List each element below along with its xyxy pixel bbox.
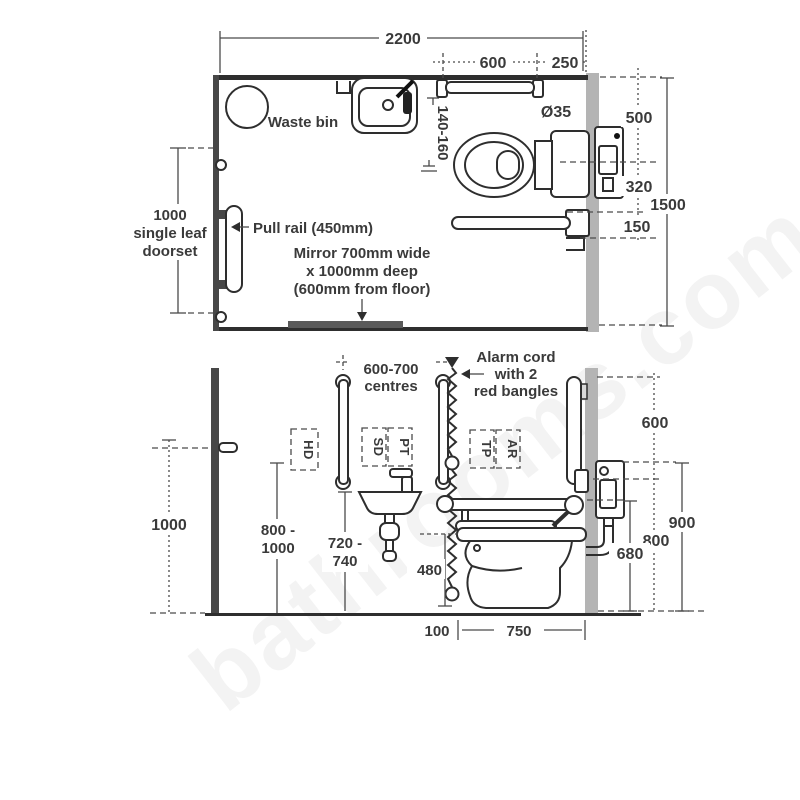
dim-elev-1000: 1000 — [146, 440, 211, 613]
wall-bracket-plan — [566, 238, 584, 250]
dim-elev-1000-label: 1000 — [151, 517, 187, 534]
dim-elev-600-label: 600 — [642, 415, 669, 432]
floor-line — [205, 613, 641, 616]
dim-720-740-label-1: 720 - — [328, 535, 362, 552]
door-label-3: doorset — [142, 243, 197, 260]
centres-label-2: centres — [364, 378, 417, 395]
dim-600-label: 600 — [480, 55, 507, 72]
dim-800-1000-label-1: 800 - — [261, 522, 295, 539]
cistern-plan — [551, 131, 589, 197]
dim-140-160-label: 140-160 — [434, 105, 451, 160]
plan-view: Waste bin 140-160 Ø35 — [128, 28, 692, 332]
accessible-bathroom-dimension-diagram: bathrooms.com Waste bin — [0, 0, 800, 800]
dim-100-label: 100 — [424, 623, 449, 640]
basin-plan — [352, 78, 417, 133]
elev-left-wall — [211, 368, 219, 615]
alarm-cord-mount — [445, 357, 459, 368]
dim-1500-label: 1500 — [650, 197, 686, 214]
alarm-arrow — [461, 369, 470, 379]
dim-800-1000-label-2: 1000 — [261, 540, 294, 557]
mirror-note: Mirror 700mm wide x 1000mm deep (600mm f… — [294, 245, 431, 321]
drop-rail-hinge — [565, 496, 583, 514]
mirror-label-2: x 1000mm deep — [306, 263, 418, 280]
door-hinge-top — [216, 160, 226, 170]
dim-150-label: 150 — [624, 219, 651, 236]
dim-2200-label: 2200 — [385, 31, 421, 48]
dim-2200: 2200 — [220, 28, 583, 73]
diagram-canvas: bathrooms.com Waste bin — [0, 0, 800, 800]
pull-rail-callout: Pull rail (450mm) — [231, 220, 373, 237]
dim-900-label: 900 — [669, 515, 696, 532]
dim-720-740-label-2: 740 — [332, 553, 357, 570]
alarm-bangle-1 — [446, 457, 459, 470]
paper-towel-label: PT — [397, 438, 412, 456]
alarm-reset-label: AR — [505, 439, 520, 459]
door-label-2: single leaf — [133, 225, 207, 242]
vertical-grab-rail-1 — [336, 355, 350, 489]
tap-elevation — [390, 469, 412, 477]
mirror-label-1: Mirror 700mm wide — [294, 245, 431, 262]
coat-hook — [219, 443, 237, 452]
dim-680-label: 680 — [617, 546, 644, 563]
dim-250-label: 250 — [552, 55, 579, 72]
soap-dispenser-label: SD — [371, 437, 386, 456]
plan-right-wall — [586, 73, 599, 332]
soap-dispenser-box: SD — [362, 428, 386, 466]
waste-bin — [226, 86, 268, 128]
door-hinge-bottom — [216, 312, 226, 322]
hand-dryer-label: HD — [301, 440, 316, 460]
dim-750-label: 750 — [506, 623, 531, 640]
door-label-1: 1000 — [153, 207, 186, 224]
pull-rail — [219, 206, 242, 292]
alarm-label-2: with 2 — [494, 366, 538, 383]
toilet-paper-label: TP — [479, 440, 494, 458]
centres-label-1: 600-700 — [363, 361, 418, 378]
duct-box-plan — [595, 127, 623, 198]
dim-100-750: 100 750 — [424, 620, 585, 640]
paper-towel-box: PT — [388, 428, 412, 466]
toilet-pan — [465, 541, 572, 608]
vertical-grab-rail-2 — [436, 362, 450, 489]
plan-left-wall-door — [213, 75, 219, 331]
hand-dryer-box: HD — [291, 429, 318, 470]
toilet-seat — [457, 528, 586, 541]
dim-480-label: 480 — [417, 562, 442, 579]
dim-140-160: 140-160 — [421, 98, 451, 171]
mirror-label-3: (600mm from floor) — [294, 281, 431, 298]
waste-bin-label: Waste bin — [268, 114, 338, 131]
alarm-label-3: red bangles — [474, 383, 558, 400]
alarm-bangle-2 — [446, 588, 459, 601]
toilet-plan — [454, 131, 589, 197]
dim-door: 1000 single leaf doorset — [128, 148, 213, 313]
mirror — [288, 321, 403, 328]
alarm-label-1: Alarm cord — [476, 349, 555, 366]
dim-500-label: 500 — [626, 110, 653, 127]
mirror-arrow — [357, 312, 367, 321]
rail-diameter-label: Ø35 — [541, 104, 571, 121]
grab-rail-top-plan — [437, 80, 543, 97]
pull-rail-label: Pull rail (450mm) — [253, 220, 373, 237]
dispenser-bracket — [337, 81, 350, 93]
toilet-elevation — [457, 528, 586, 608]
dim-320-label: 320 — [626, 179, 653, 196]
drop-rail-plan — [452, 210, 589, 250]
tap-body — [403, 92, 412, 114]
